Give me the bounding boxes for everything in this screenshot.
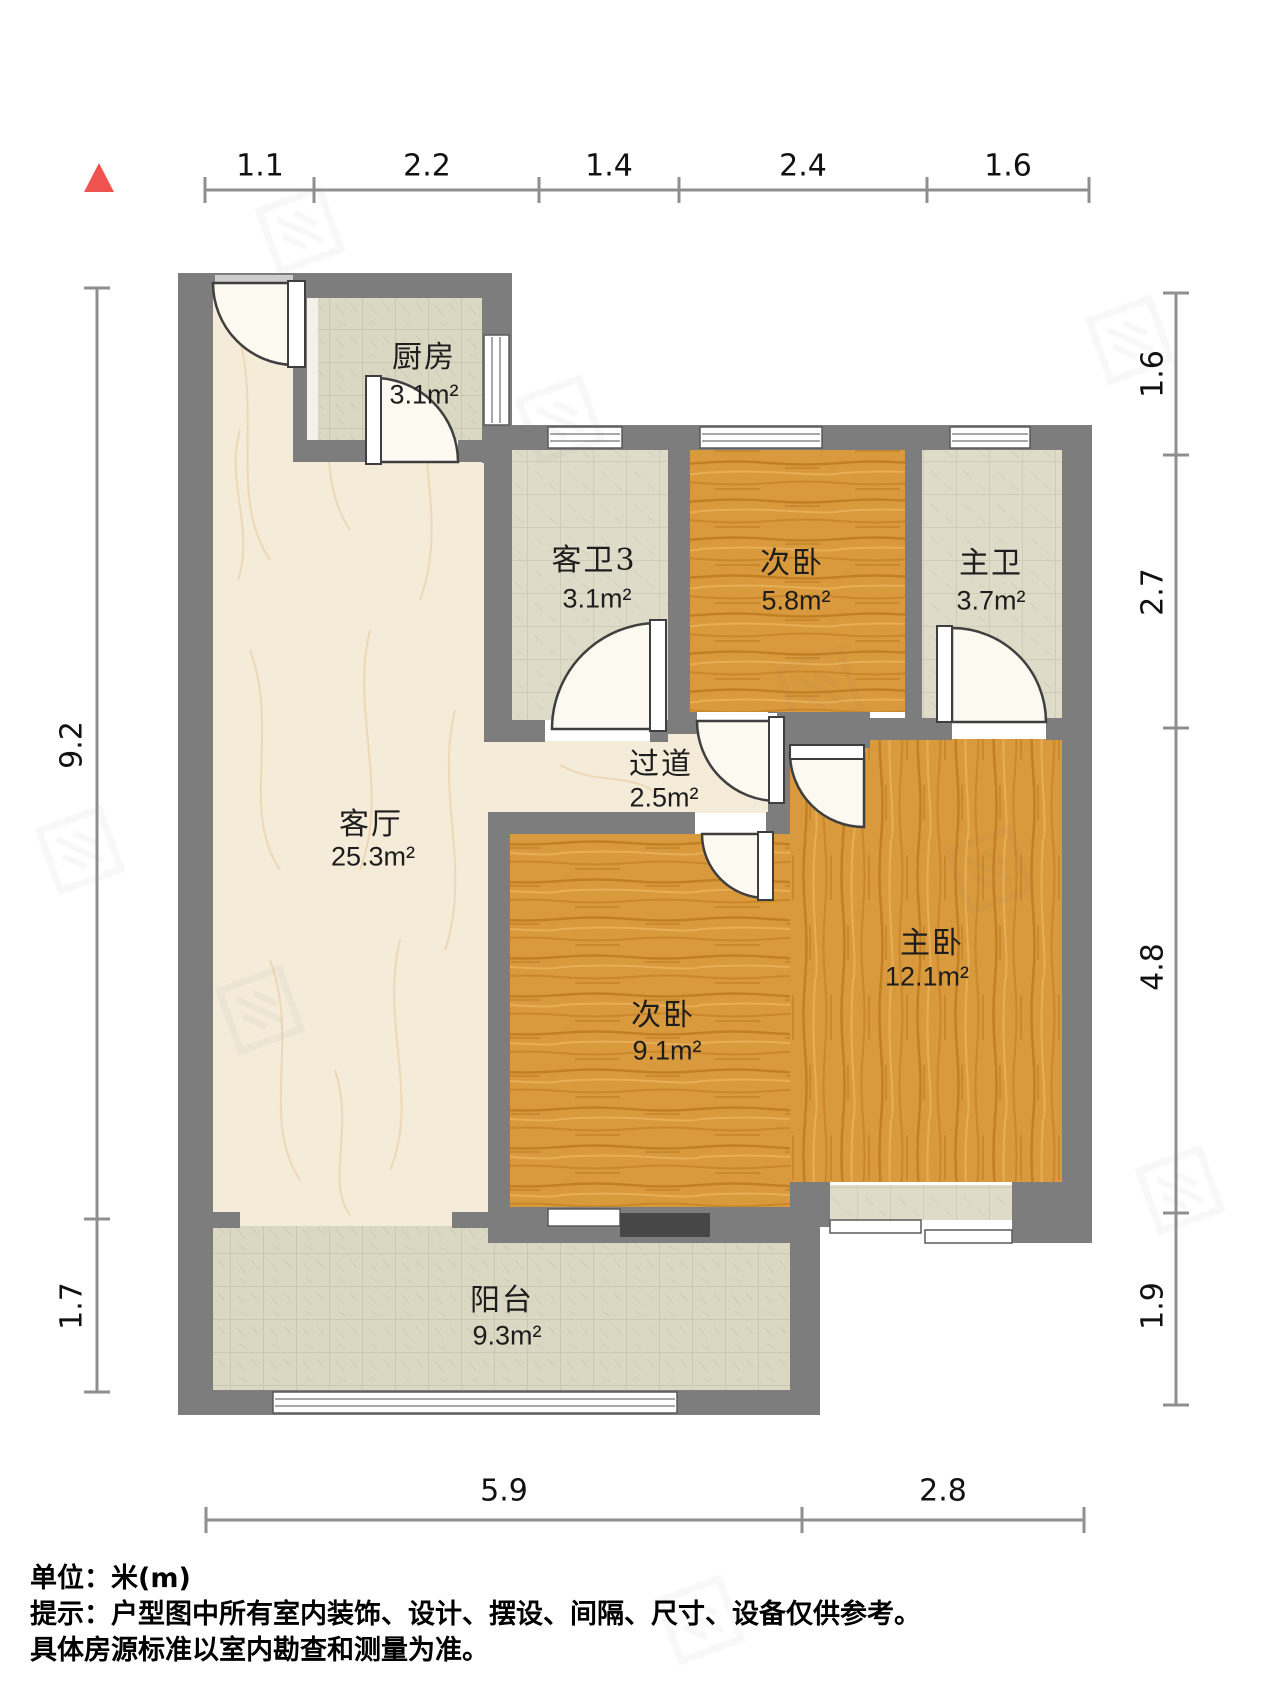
room-label-bedroom2-lower: 次卧 bbox=[631, 990, 695, 1034]
room-area-guest-bathroom: 3.1m² bbox=[562, 584, 631, 615]
room-area-bedroom2-upper: 5.8m² bbox=[761, 586, 830, 617]
room-label-balcony: 阳台 bbox=[470, 1275, 534, 1319]
dim-right-1: 1.6 bbox=[1136, 350, 1171, 398]
wall-balcony-stub-left bbox=[213, 1212, 240, 1228]
master-bathroom-door-leaf bbox=[937, 626, 952, 722]
bay-window-pane-left bbox=[830, 1220, 921, 1233]
dim-top-1: 1.1 bbox=[236, 149, 284, 184]
room-label-bedroom2-upper: 次卧 bbox=[760, 538, 824, 582]
master-bedroom-door-leaf bbox=[790, 745, 864, 759]
bedroom2-upper-door-leaf bbox=[769, 717, 784, 803]
room-area-bedroom2-lower: 9.1m² bbox=[632, 1036, 701, 1067]
wall-hall-bottom-a bbox=[488, 812, 695, 834]
bedroom2-lower-window-dark-pane bbox=[620, 1213, 710, 1237]
wall-right-exterior bbox=[1062, 425, 1092, 1182]
wall-hall-bottom-b bbox=[766, 812, 790, 834]
footer-unit-note: 单位：米(m) bbox=[30, 1556, 191, 1595]
bedroom2-lower-window bbox=[548, 1209, 620, 1226]
room-area-balcony: 9.3m² bbox=[472, 1321, 541, 1352]
red-triangle-marker bbox=[84, 163, 114, 192]
balcony-window bbox=[273, 1392, 677, 1413]
wall-guestbath-bedroom2 bbox=[668, 450, 690, 734]
dim-top-5: 1.6 bbox=[984, 149, 1032, 184]
wall-balcony-right bbox=[790, 1223, 820, 1415]
footer-hint-line1: 提示：户型图中所有室内装饰、设计、摆设、间隔、尺寸、设备仅供参考。 bbox=[30, 1592, 921, 1631]
room-label-guest-bathroom: 客卫3 bbox=[551, 535, 636, 579]
bay-window-pane-right bbox=[925, 1230, 1012, 1243]
dim-left-1: 9.2 bbox=[55, 721, 90, 769]
bedroom2-upper-window bbox=[700, 427, 822, 448]
room-label-master-bedroom: 主卧 bbox=[900, 918, 964, 962]
room-area-living-room: 25.3m² bbox=[331, 842, 415, 873]
guest-bathroom-door-leaf bbox=[650, 620, 666, 731]
wall-bay-left-block bbox=[790, 1182, 830, 1227]
bedroom2-lower-door-leaf bbox=[758, 832, 773, 900]
dim-right-2: 2.7 bbox=[1136, 568, 1171, 616]
wall-kitchen-bottom-b bbox=[458, 440, 482, 462]
wall-kitchen-bottom-a bbox=[305, 440, 374, 462]
wall-guestbath-bottom-a bbox=[512, 720, 545, 742]
room-label-kitchen: 厨房 bbox=[392, 332, 456, 376]
room-area-master-bedroom: 12.1m² bbox=[885, 962, 969, 993]
dim-bottom-2: 2.8 bbox=[919, 1474, 967, 1509]
wall-balcony-stub-mid bbox=[452, 1212, 488, 1228]
room-area-kitchen: 3.1m² bbox=[389, 380, 458, 411]
wall-left-exterior bbox=[178, 273, 213, 1415]
bay-window-sill bbox=[830, 1185, 1012, 1220]
dim-top-3: 1.4 bbox=[585, 149, 633, 184]
room-label-hallway: 过道 bbox=[629, 739, 693, 783]
kitchen-door-leaf bbox=[366, 376, 381, 464]
dim-bottom-1: 5.9 bbox=[480, 1474, 528, 1509]
wall-bedroom2-masterbath bbox=[905, 450, 922, 718]
dim-top-4: 2.4 bbox=[779, 149, 827, 184]
room-label-master-bathroom: 主卫 bbox=[959, 538, 1023, 582]
wall-bay-right-block bbox=[1012, 1182, 1092, 1243]
kitchen-window bbox=[484, 335, 509, 425]
room-area-hallway: 2.5m² bbox=[629, 783, 698, 814]
dim-right-3: 4.8 bbox=[1136, 943, 1171, 991]
entry-door-leaf bbox=[288, 281, 305, 367]
room-label-living-room: 客厅 bbox=[339, 799, 403, 843]
dim-right-4: 1.9 bbox=[1136, 1282, 1171, 1330]
dim-top-2: 2.2 bbox=[403, 149, 451, 184]
footer-hint-line2: 具体房源标准以室内勘查和测量为准。 bbox=[30, 1628, 489, 1667]
wall-living-guestbath bbox=[484, 450, 512, 742]
master-bathroom-window bbox=[950, 427, 1030, 448]
dim-left-2: 1.7 bbox=[55, 1282, 90, 1330]
room-area-master-bathroom: 3.7m² bbox=[956, 586, 1025, 617]
wall-bedroom2lower-left bbox=[488, 812, 510, 1243]
floorplan-drawing bbox=[0, 0, 1277, 1688]
floorplan-page: 厨房 3.1m² 客卫3 3.1m² 次卧 5.8m² 主卫 3.7m² 过道 … bbox=[0, 0, 1277, 1688]
